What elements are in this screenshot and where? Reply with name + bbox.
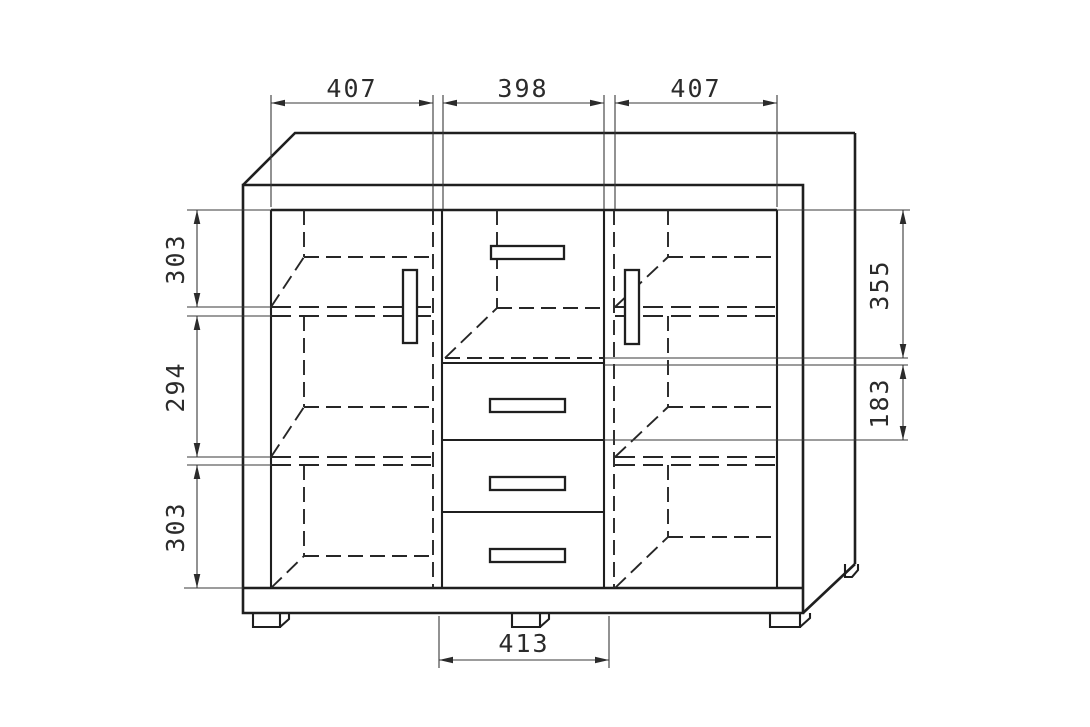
dimension-label-bottom: 413 — [498, 629, 549, 658]
flap-door-handle — [491, 246, 564, 259]
dimension-label-top-right: 407 — [670, 74, 721, 103]
right-door-handle — [625, 270, 639, 344]
left-door-handle — [403, 270, 417, 343]
dimension-label-right-lower: 183 — [865, 377, 894, 428]
foot-right — [770, 613, 810, 627]
drawer-1-handle — [490, 399, 565, 412]
sideboard-dimension-drawing: 407 398 407 303 294 303 355 183 413 — [0, 0, 1090, 727]
dimension-label-right-upper: 355 — [865, 259, 894, 310]
bottom-dimension: 413 — [439, 616, 609, 668]
left-compartment-3-interior — [271, 465, 433, 588]
dimension-label-top-left: 407 — [326, 74, 377, 103]
middle-section — [443, 210, 604, 562]
dimension-label-left-lower: 303 — [161, 501, 190, 552]
dimension-label-left-middle: 294 — [161, 361, 190, 412]
dimension-label-top-middle: 398 — [497, 74, 548, 103]
drawer-2-handle — [490, 477, 565, 490]
cabinet-side-bottom-edge — [803, 564, 855, 613]
flap-compartment-interior — [445, 210, 604, 358]
technical-drawing-page: 407 398 407 303 294 303 355 183 413 — [0, 0, 1090, 727]
cabinet-top-face — [243, 133, 855, 185]
dimension-label-left-upper: 303 — [161, 233, 190, 284]
foot-middle — [512, 613, 549, 627]
top-dimensions: 407 398 407 — [271, 74, 777, 209]
right-compartment-3-interior — [615, 465, 777, 588]
foot-left — [253, 613, 289, 627]
left-door-section — [187, 210, 433, 588]
drawer-3-handle — [490, 549, 565, 562]
right-dimensions: 355 183 — [604, 210, 910, 440]
left-dimensions: 303 294 303 — [161, 210, 271, 588]
right-door-section — [615, 210, 777, 588]
